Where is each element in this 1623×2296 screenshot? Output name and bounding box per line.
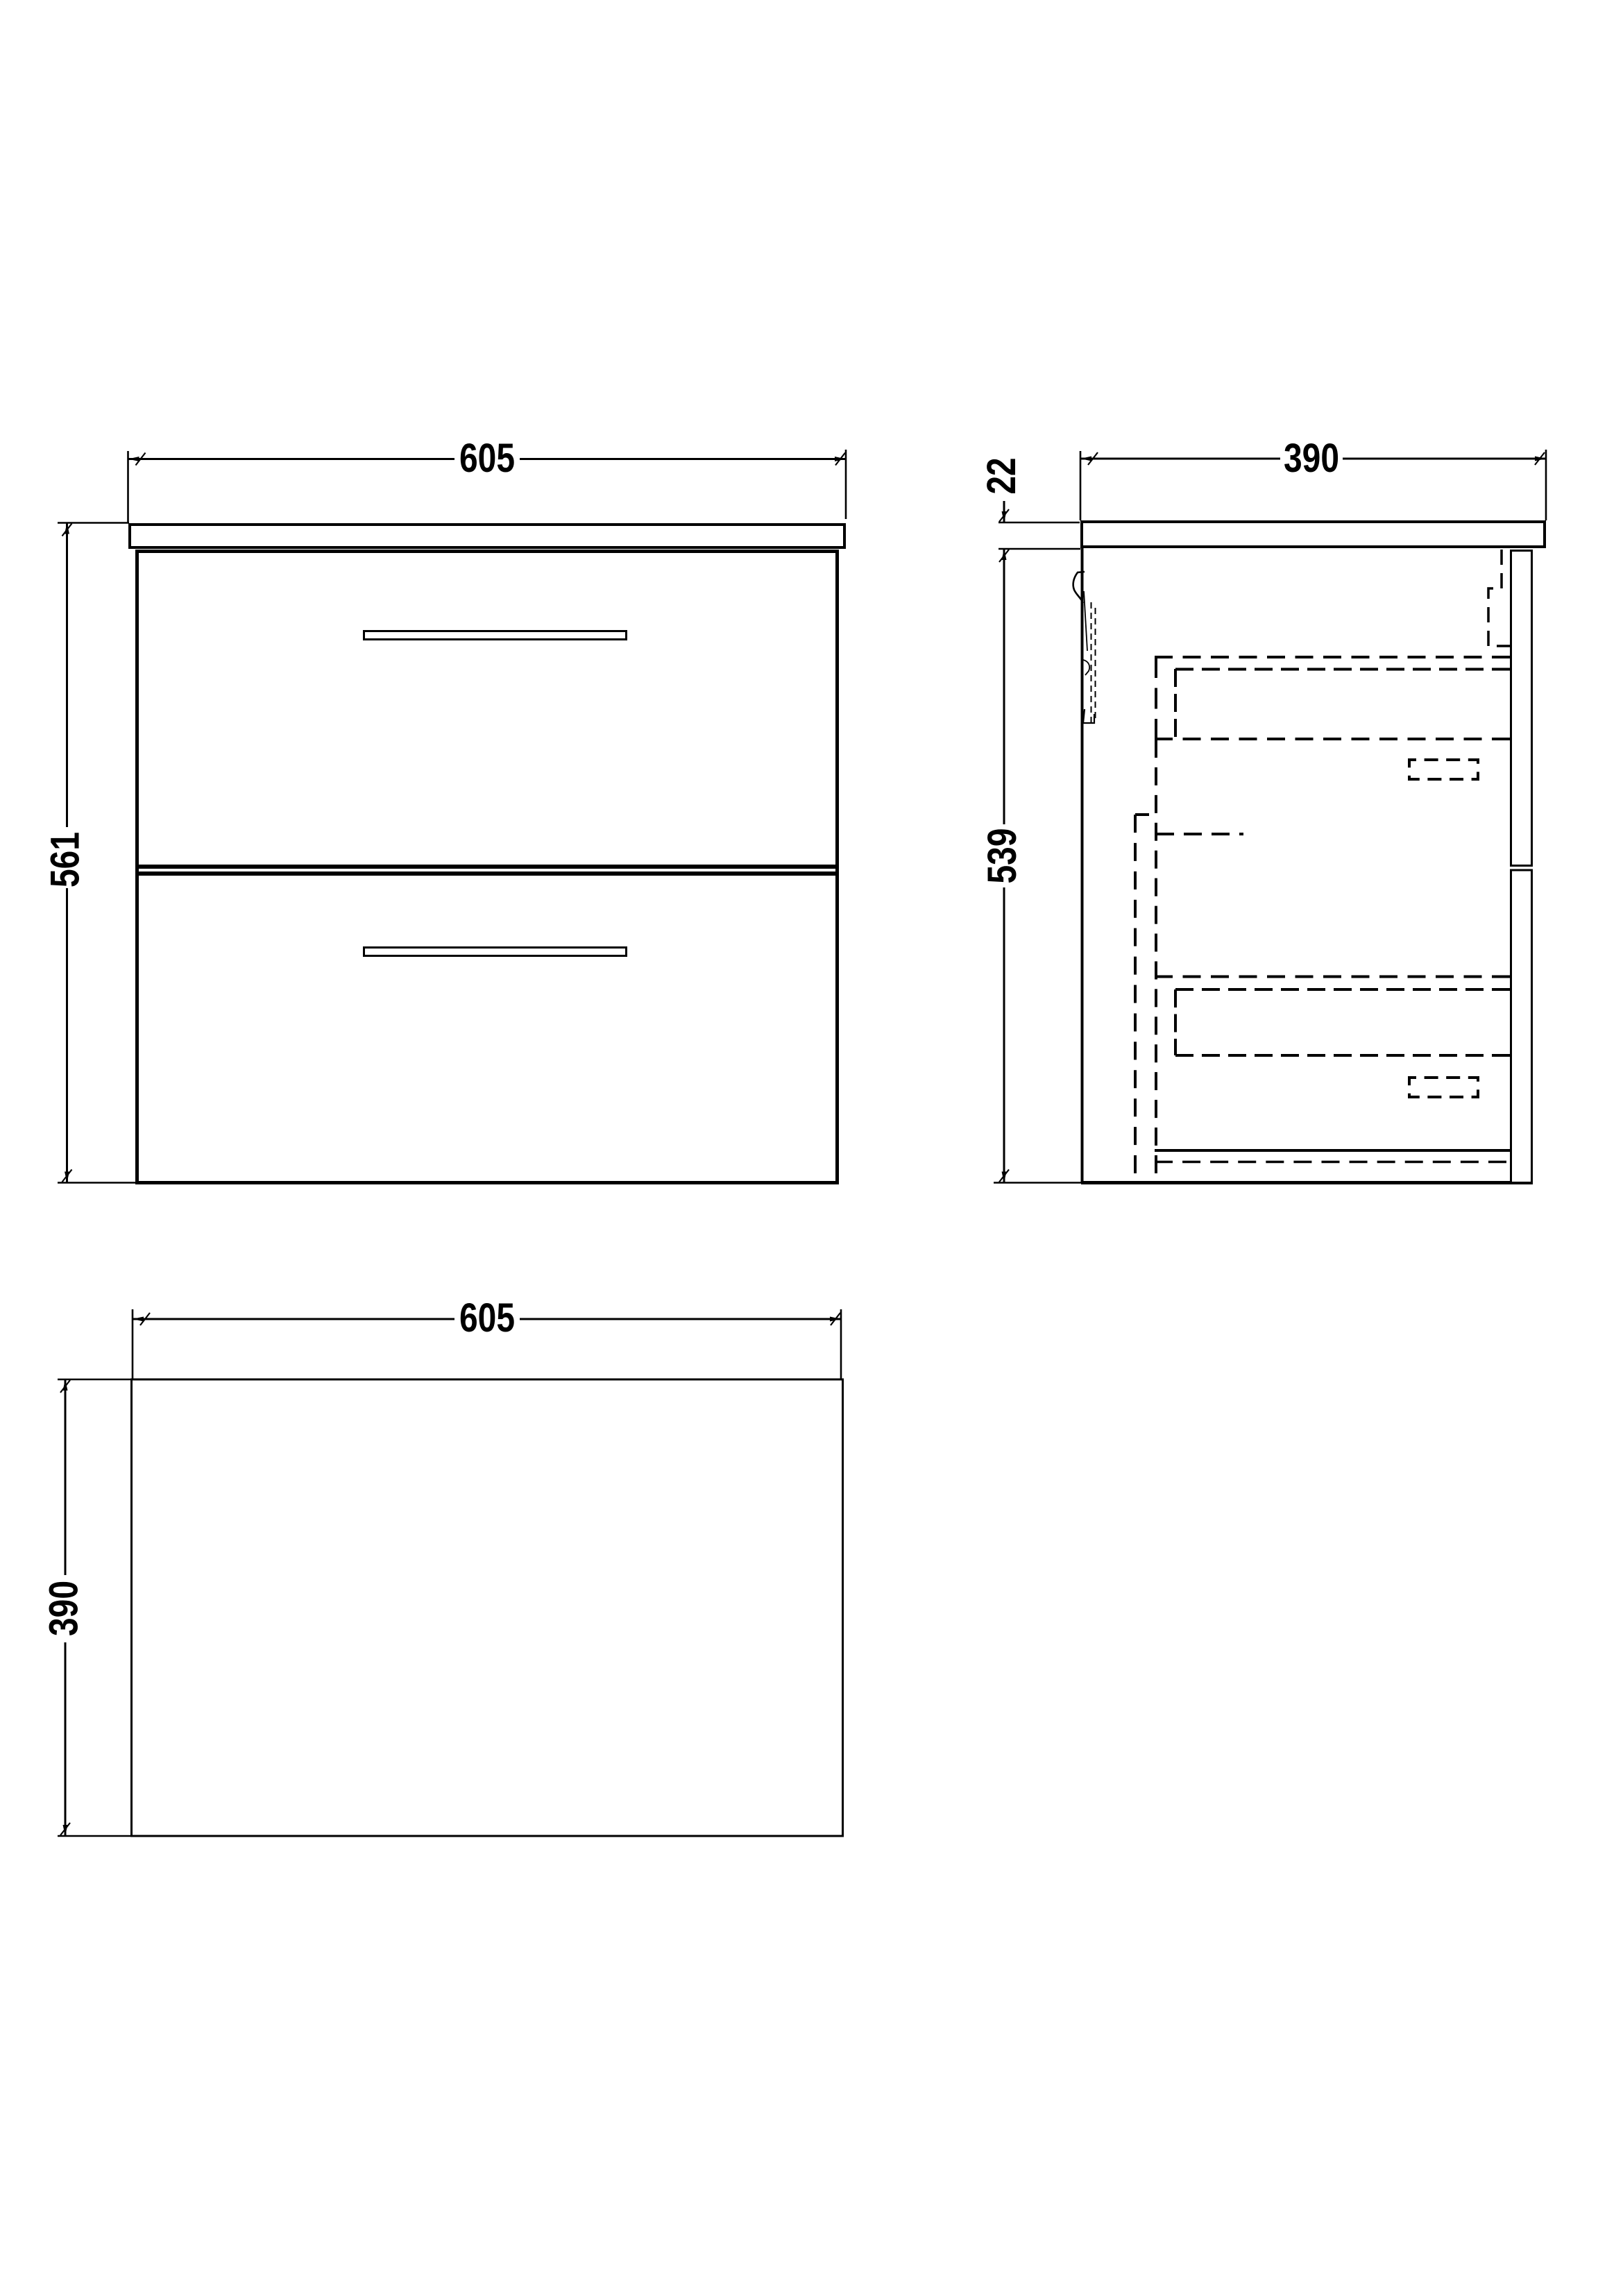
svg-text:605: 605 — [459, 436, 515, 481]
svg-text:22: 22 — [979, 458, 1024, 495]
svg-text:605: 605 — [459, 1295, 515, 1341]
svg-text:390: 390 — [1284, 436, 1339, 481]
svg-text:539: 539 — [980, 828, 1025, 884]
svg-text:390: 390 — [42, 1581, 87, 1636]
svg-text:561: 561 — [43, 832, 88, 887]
